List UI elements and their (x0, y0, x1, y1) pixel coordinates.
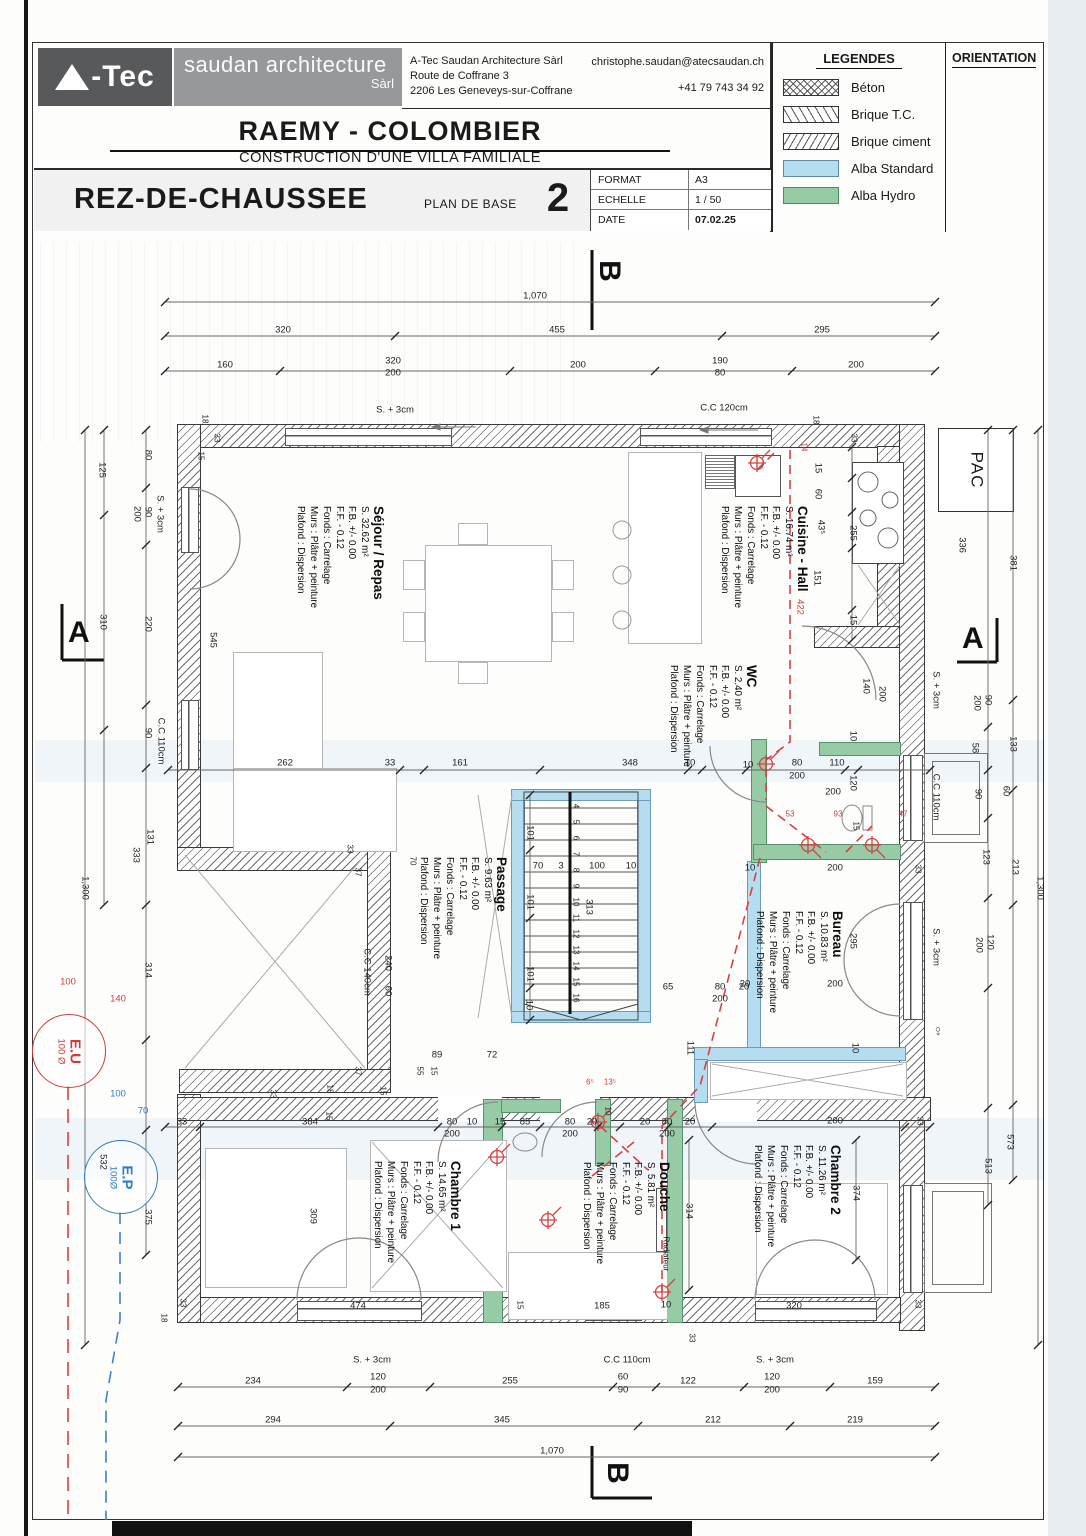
dim-label: C.C 110cm (604, 1355, 651, 1366)
plan-linework (0, 0, 1086, 1536)
section-marker-b-top: B (592, 260, 626, 282)
dim-label: 70 (138, 1106, 149, 1117)
dim-label: 161 (452, 758, 468, 769)
dim-label: 200 (659, 1129, 675, 1140)
dim-label: 80 (565, 1117, 576, 1128)
dim-label: 60 (383, 986, 394, 997)
dim-label: 200 (848, 360, 864, 371)
dim-label: 159 (867, 1376, 883, 1387)
dim-label: 101 (525, 825, 536, 841)
dim-label: 85 (520, 1117, 531, 1128)
dim-label: 15 (572, 978, 581, 987)
dim-label: 14 (572, 962, 581, 971)
window-arc (755, 1240, 815, 1300)
dim-label: 513 (983, 1158, 994, 1174)
dim-label: 200 (712, 994, 728, 1005)
washbasin-icon (513, 1133, 537, 1151)
dim-label: 374 (851, 1185, 862, 1201)
dim-label: 110 (829, 758, 844, 769)
dim-label: 200 (877, 686, 888, 702)
dim-label: 33 (914, 865, 923, 874)
dim-label: 89 (432, 1050, 443, 1061)
dim-label: 185 (594, 1301, 610, 1312)
dim-label: 33 (269, 1090, 278, 1099)
dim-label: 120 (848, 775, 859, 791)
dim-label: 262 (277, 758, 293, 769)
dim-label: 200 (370, 1385, 386, 1396)
dim-label: 37 (354, 1067, 363, 1076)
dim-label: 100 (589, 861, 605, 872)
dim-label: 240 (383, 955, 394, 971)
dim-label: 314 (143, 962, 154, 978)
dim-label: 10 (850, 1043, 861, 1054)
dim-label: 200 (827, 1116, 843, 1127)
dim-label: 60 (618, 1372, 629, 1383)
bar-stools-icon (613, 521, 631, 629)
dim-label: 3 (558, 861, 563, 872)
dim-label: 8 (572, 868, 581, 872)
dim-label: 220 (143, 616, 154, 632)
dim-label: 20 (640, 1117, 651, 1128)
dim-label: 80 (792, 758, 803, 769)
dim-label: 100 (60, 977, 76, 988)
dim-label: 18 (201, 415, 210, 424)
annotation-arrows (432, 424, 758, 433)
dim-label: 15 (197, 452, 206, 461)
dim-label: 70 (409, 857, 418, 866)
dim-label: 53 (786, 810, 795, 819)
dim-label: 313 (584, 899, 595, 915)
dim-label: 345 (494, 1415, 510, 1426)
dim-label: 80 (143, 450, 154, 461)
dim-label: 6 (572, 836, 581, 840)
dim-label: 295 (814, 325, 830, 336)
dim-label: 9 (572, 884, 581, 888)
room-label-wc: WC S. 2.40 m² F.B. +/- 0.00 F.F. - 0.12 … (667, 665, 759, 767)
dim-label: 12 (572, 930, 581, 939)
dim-label: 93 (834, 810, 843, 819)
room-label-sejour: Séjour / Repas S. 32.62 m² F.B. +/- 0.00… (294, 506, 386, 608)
dim-label: 125 (97, 462, 108, 478)
dim-label: 7 (572, 852, 581, 856)
dim-label: 6⁵ (586, 1078, 594, 1087)
dim-label: 151 (812, 570, 823, 586)
dim-label: 200 (972, 695, 983, 711)
dim-label: 15 (852, 822, 861, 831)
dim-label: 18 (812, 416, 821, 425)
dim-label: 200 (562, 1129, 578, 1140)
dim-label: 33 (914, 1300, 923, 1309)
dim-label: 15 (325, 1112, 334, 1121)
dim-label: 1,300 (1035, 876, 1046, 900)
dim-label: 55 (416, 1067, 425, 1076)
dim-label: 18 (326, 1085, 335, 1094)
dim-label: 10 (467, 1117, 478, 1128)
dim-label: 14 (800, 443, 809, 452)
dim-label: 200 (570, 360, 586, 371)
dim-label: 200 (444, 1129, 460, 1140)
dim-label: 20 (740, 979, 751, 990)
dim-label: 333 (131, 847, 142, 863)
dim-label: 1,070 (523, 291, 547, 302)
dim-label: 10 (626, 861, 637, 872)
dim-label: 10 (604, 1107, 613, 1116)
dim-label: 320 (385, 356, 401, 367)
dim-label: 5 (572, 820, 581, 824)
dim-label: 90 (983, 695, 994, 706)
dim-label: 320 (786, 1301, 802, 1312)
dim-label: 15 (813, 463, 824, 474)
dim-label: 123 (981, 849, 992, 865)
dim-label: 200 (825, 787, 841, 798)
dim-label: 33 (177, 1117, 188, 1128)
door-arc (190, 489, 240, 539)
dim-label: 13 (572, 946, 581, 955)
dim-label: 190 (712, 356, 728, 367)
dim-label: 314 (684, 1203, 695, 1219)
architectural-plan-sheet: -Tec saudan architecture Sàrl A-Tec Saud… (0, 0, 1086, 1536)
dim-label: 10 (848, 731, 859, 742)
dim-label: 384 (302, 1117, 318, 1128)
dim-label: 10 (745, 863, 756, 874)
dim-label: 33 (916, 1117, 925, 1126)
dim-label: 58 (970, 743, 981, 754)
dim-label: 4 (572, 804, 581, 808)
dim-label: 43⁵ (816, 520, 827, 535)
stove-burners-icon (858, 472, 898, 548)
dim-label: 80 (662, 1117, 673, 1128)
dim-label: 532 (98, 1154, 109, 1170)
dim-label: 20 (685, 1117, 696, 1128)
dim-label: 320 (275, 325, 291, 336)
dim-label: S. + 3cm (353, 1355, 391, 1366)
dim-label: 255 (848, 525, 859, 541)
dim-label: 474 (350, 1301, 366, 1312)
dim-label: 60 (813, 489, 824, 500)
dim-label: 131 (145, 829, 156, 845)
dim-label: 200 (132, 506, 143, 522)
dim-label: 375 (143, 1209, 154, 1225)
dim-label: 219 (847, 1415, 863, 1426)
staircase (524, 792, 638, 1020)
dim-label: 1,070 (540, 1446, 564, 1457)
dim-label: S. + 3cm (931, 671, 942, 709)
dim-label: 10 (685, 758, 696, 769)
dim-label: 15 (430, 1067, 439, 1076)
dim-label: C.C 120cm (700, 403, 748, 414)
dim-label: 60 (1001, 786, 1012, 797)
section-marker-a-left: A (68, 616, 90, 650)
window-arc (815, 1240, 875, 1300)
dim-label: 212 (705, 1415, 721, 1426)
dim-label: 90 (618, 1385, 629, 1396)
dim-label: 310 (98, 614, 109, 630)
dim-label: 200 (764, 1385, 780, 1396)
dim-label: 573 (1005, 1134, 1016, 1150)
dim-label: 111 (685, 1041, 696, 1055)
dim-label: 47 (899, 810, 908, 819)
door-arc-chambre2 (695, 1102, 757, 1164)
dim-label: 33 (346, 845, 355, 854)
dim-label: 10 (572, 898, 581, 907)
room-label-cuisine: Cuisine - Hall S. 16.74 m² F.B. +/- 0.00… (718, 506, 810, 608)
dim-label: 33 (179, 1299, 188, 1308)
dimension-lines (81, 298, 1042, 1461)
dim-label: 234 (245, 1376, 261, 1387)
ep-drain-line (106, 1212, 120, 1520)
dim-label: 90 (973, 789, 984, 800)
dim-label: 37 (354, 868, 363, 877)
dim-label: 15 (848, 615, 859, 626)
section-marker-a-right: A (962, 622, 984, 656)
dim-label: 90 (143, 507, 154, 518)
dim-label: 140 (110, 994, 126, 1005)
dim-label: 100 (110, 1089, 126, 1100)
dim-label: 336 (957, 537, 968, 553)
dim-label: 200 (789, 771, 805, 782)
dim-label: 295 (848, 933, 859, 949)
dim-label: 422 (795, 599, 806, 615)
dim-label: 15 (516, 1301, 525, 1310)
dim-label: 80 (715, 368, 726, 379)
dim-label: 133 (1008, 736, 1019, 752)
dim-label: 33 (688, 1334, 697, 1343)
dim-label: C.C 110cm (156, 718, 167, 765)
eu-drain-marker: E.U 100 Ø (32, 1014, 106, 1088)
dim-label: 213 (1010, 859, 1021, 875)
dim-label: 122 (680, 1376, 696, 1387)
dim-label: 10 (661, 1300, 672, 1311)
dim-label: 200 (974, 937, 985, 953)
dim-label: 80 (447, 1117, 458, 1128)
dim-label: 200 (827, 979, 843, 990)
dim-label: 10 (743, 760, 754, 771)
dim-label: 65 (663, 982, 674, 993)
room-label-bureau: Bureau S. 10.83 m² F.B. +/- 0.00 F.F. - … (753, 911, 845, 1013)
door-arc-bureau (844, 960, 900, 1016)
room-label-chambre2: Chambre 2 S. 11.26 m² F.B. +/- 0.00 F.F.… (751, 1145, 843, 1247)
dim-label: 11 (572, 914, 581, 922)
dim-label: 33 (850, 434, 859, 443)
dim-label: 160 (217, 360, 233, 371)
dim-label: 15 (379, 1087, 388, 1096)
dim-label: S. + 3cm (756, 1355, 794, 1366)
room-label-chambre1: Chambre 1 S. 14.65 m² F.B. +/- 0.00 F.F.… (371, 1161, 463, 1263)
dim-label: 16 (572, 994, 581, 1003)
door-arc-bureau (844, 904, 900, 960)
dim-label: 18 (160, 1314, 169, 1323)
dim-label: C.C 140cm (362, 948, 373, 996)
dim-label: 348 (622, 758, 638, 769)
dim-label: 120 (370, 1372, 386, 1383)
dim-label: 455 (549, 325, 565, 336)
dim-label: 294 (265, 1415, 281, 1426)
dim-label: 33 (385, 758, 396, 769)
window-arc (297, 1238, 359, 1300)
dim-label: 15 (495, 1117, 506, 1128)
room-label-douche: Douche S. 5.81 m² F.B. +/- 0.00 F.F. - 0… (580, 1162, 672, 1264)
door-arc (190, 539, 240, 589)
room-label-passage: Passage S. 9.63 m² F.B. +/- 0.00 F.F. - … (417, 857, 509, 959)
dim-label: 381 (1008, 555, 1019, 571)
dim-label: 101 (525, 966, 536, 982)
dim-label: 309 (308, 1208, 319, 1224)
dim-label: 120 (764, 1372, 780, 1383)
dim-label: Radiateur (662, 1237, 671, 1272)
dim-label: 90 (143, 728, 154, 739)
section-marker-b-bottom: B (600, 1462, 634, 1484)
dim-label: 140 (861, 678, 872, 694)
dim-label: 101 (525, 894, 536, 910)
dim-label: 80 (715, 982, 726, 993)
dim-label: 200 (385, 368, 401, 379)
dim-label: C.C 110cm (931, 774, 942, 821)
dim-label: 72 (487, 1050, 498, 1061)
dim-label: 10 (524, 1000, 535, 1011)
dim-label: 200 (827, 863, 843, 874)
dim-label: 70 (533, 861, 544, 872)
dim-label: 120 (985, 934, 996, 950)
dim-label: 1,300 (80, 876, 91, 900)
dim-label: 13⁵ (604, 1078, 616, 1087)
dim-label: 255 (502, 1376, 518, 1387)
dim-label: 33 (213, 434, 222, 443)
dim-label: 545 (208, 632, 219, 648)
dim-label: S. + 3cm (931, 928, 942, 966)
dim-label: 20 (587, 1117, 598, 1128)
dim-label: S. + 3cm (376, 405, 414, 416)
ep-drain-marker: E.P 100Ø (84, 1140, 158, 1214)
dim-label: S. + 3cm (155, 495, 166, 533)
